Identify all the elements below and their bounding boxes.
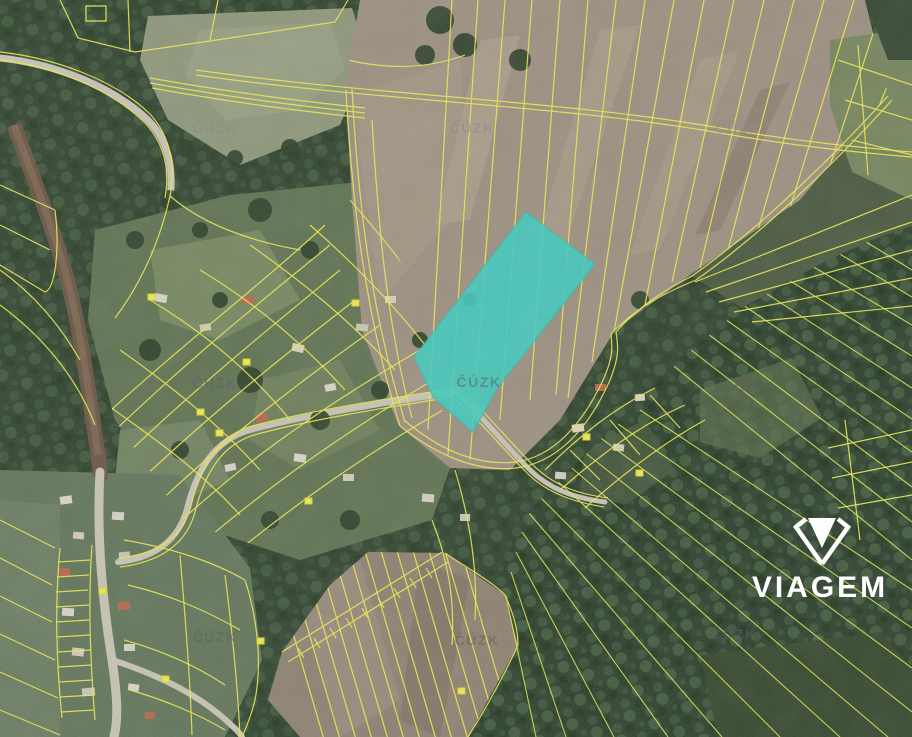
cuzk-watermark: ČÚZK <box>193 628 238 645</box>
cuzk-watermark: ČÚZK <box>457 373 502 390</box>
photo-mottle <box>0 0 912 737</box>
cuzk-watermark: ČÚZK <box>455 631 500 648</box>
cuzk-watermark: ČÚZK <box>716 119 761 136</box>
map-viewport[interactable]: ČÚZK ČÚZK ČÚZK ČÚZK ČÚZK ČÚZK ČÚZK ČÚZK … <box>0 0 912 737</box>
cuzk-watermark: ČÚZK <box>193 374 238 391</box>
cuzk-watermark: ČÚZK <box>717 377 762 394</box>
cuzk-watermark: ČÚZK <box>193 119 238 136</box>
cuzk-watermark: ČÚZK <box>712 625 757 642</box>
cuzk-watermark: ČÚZK <box>450 119 495 136</box>
viagem-logo-text: VIAGEM <box>752 571 888 604</box>
